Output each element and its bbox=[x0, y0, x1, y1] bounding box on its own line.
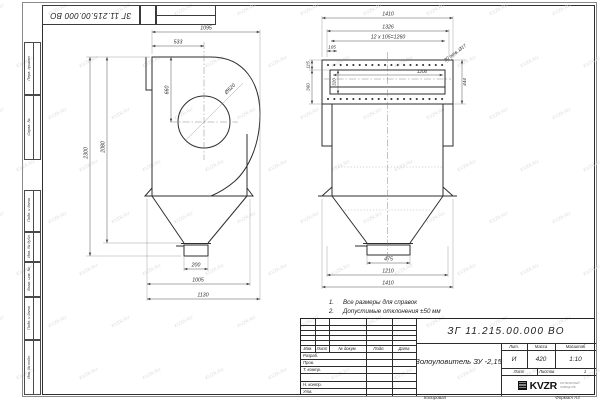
dim-label: 105 bbox=[328, 45, 336, 50]
part-name: Золоуловитель ЗУ -2,15 bbox=[416, 343, 501, 379]
note-2: 2. Допустимые отклонения ±50 мм bbox=[322, 308, 522, 317]
row-tkontr: Т. контр. bbox=[301, 366, 368, 373]
side-box-perv-primen: Перв. примен. bbox=[24, 42, 41, 95]
mass-value: 420 bbox=[527, 350, 555, 368]
format-label: Формат А3 bbox=[540, 395, 595, 400]
title-block: Изм. Лист № докум. Подп. Дата Разраб. Пр… bbox=[300, 318, 595, 395]
scale-value: 1:10 bbox=[555, 350, 596, 368]
lit-value: И bbox=[501, 350, 527, 368]
col-dokum: № докум. bbox=[329, 345, 366, 353]
dim-label: 1410 bbox=[382, 12, 394, 18]
dim-label: 1210 bbox=[382, 269, 394, 275]
side-box-podp-data-1: Подп. и дата bbox=[24, 190, 41, 232]
corner-stamp: ЗГ 11.215.00.000 ВО bbox=[42, 5, 140, 25]
dim-label: 1326 bbox=[382, 25, 394, 31]
side-box-podp-data-2: Подп. и дата bbox=[24, 297, 41, 340]
left-view-dimensions: 1095 533 660 Ø520 2300 2080 200 bbox=[84, 26, 261, 302]
dim-label: 1130 bbox=[197, 293, 208, 299]
dim-label: 2300 bbox=[84, 147, 90, 160]
kvzr-logo-text: KVZR bbox=[530, 380, 557, 392]
dim-label: 444 bbox=[462, 78, 467, 86]
right-view: 1410 1326 12 х 105=1260 105 30 отв. Ø17 … bbox=[306, 12, 468, 290]
dim-label: 1095 bbox=[200, 26, 212, 32]
dim-label: 115 bbox=[306, 61, 311, 69]
row-utv: Утв. bbox=[301, 388, 368, 396]
drawing-sheet: KVZR.RUKVZR.RUKVZR.RUKVZR.RUKVZR.RUKVZR.… bbox=[0, 0, 600, 400]
dim-label: 1200 bbox=[417, 69, 428, 74]
dim-label: 660 bbox=[165, 86, 171, 95]
sheets-label: Листов bbox=[537, 368, 579, 375]
corner-stamp-cell-1 bbox=[140, 5, 156, 25]
corner-stamp-text: ЗГ 11.215.00.000 ВО bbox=[50, 11, 131, 20]
kvzr-logo-icon bbox=[518, 381, 527, 390]
col-list: Лист bbox=[315, 345, 329, 353]
col-data: Дата bbox=[392, 345, 416, 353]
holes-note: 30 отв. Ø17 bbox=[443, 43, 468, 63]
col-izm: Изм. bbox=[301, 345, 315, 353]
left-view: 1095 533 660 Ø520 2300 2080 200 bbox=[84, 26, 261, 302]
sheets-value: 1 bbox=[577, 368, 593, 375]
right-view-geometry bbox=[318, 52, 457, 262]
row-razrab: Разраб. bbox=[301, 352, 368, 359]
dim-label: 1410 bbox=[382, 281, 394, 287]
side-box-inv-dubl: Инв. № дубл. bbox=[24, 232, 41, 262]
dim-label: 200 bbox=[191, 263, 201, 269]
dim-label: 533 bbox=[174, 40, 183, 46]
scale-header: Масштаб bbox=[555, 343, 596, 350]
doc-number: ЗГ 11.215.00.000 ВО bbox=[416, 319, 596, 343]
lit-header: Лит. bbox=[501, 343, 527, 350]
dim-label: 1005 bbox=[192, 278, 204, 284]
dim-label: 12 х 105=1260 bbox=[371, 35, 406, 41]
dim-label: 2080 bbox=[101, 141, 107, 154]
copied-label: Копировал bbox=[395, 395, 475, 400]
side-box-sprav: Справ. № bbox=[24, 95, 41, 160]
dim-label: 320 bbox=[332, 78, 337, 86]
row-nkontr: Н. контр. bbox=[301, 381, 368, 389]
corner-stamp-cell-2 bbox=[156, 5, 216, 25]
left-view-geometry bbox=[145, 42, 260, 256]
row-prov: Пров. bbox=[301, 359, 368, 366]
dim-label: 360 bbox=[306, 83, 311, 91]
dim-label: 475 bbox=[384, 257, 393, 263]
kvzr-logo-subtext: КОТЕЛЬНЫЙ ЗАВОД РФ bbox=[560, 382, 579, 389]
mass-header: Масса bbox=[527, 343, 555, 350]
sheet-label: Лист bbox=[501, 368, 537, 375]
col-podp: Подп. bbox=[366, 345, 392, 353]
notes-block: 1. Все размеры для справок 2. Допустимые… bbox=[322, 299, 522, 316]
note-1: 1. Все размеры для справок bbox=[322, 299, 522, 308]
dim-label: Ø520 bbox=[223, 83, 237, 97]
side-box-vzam-inv: Взам. инв. № bbox=[24, 262, 41, 297]
side-box-inv-podl: Инв. № подл. bbox=[24, 340, 41, 395]
company-logo: KVZR КОТЕЛЬНЫЙ ЗАВОД РФ bbox=[501, 375, 596, 396]
